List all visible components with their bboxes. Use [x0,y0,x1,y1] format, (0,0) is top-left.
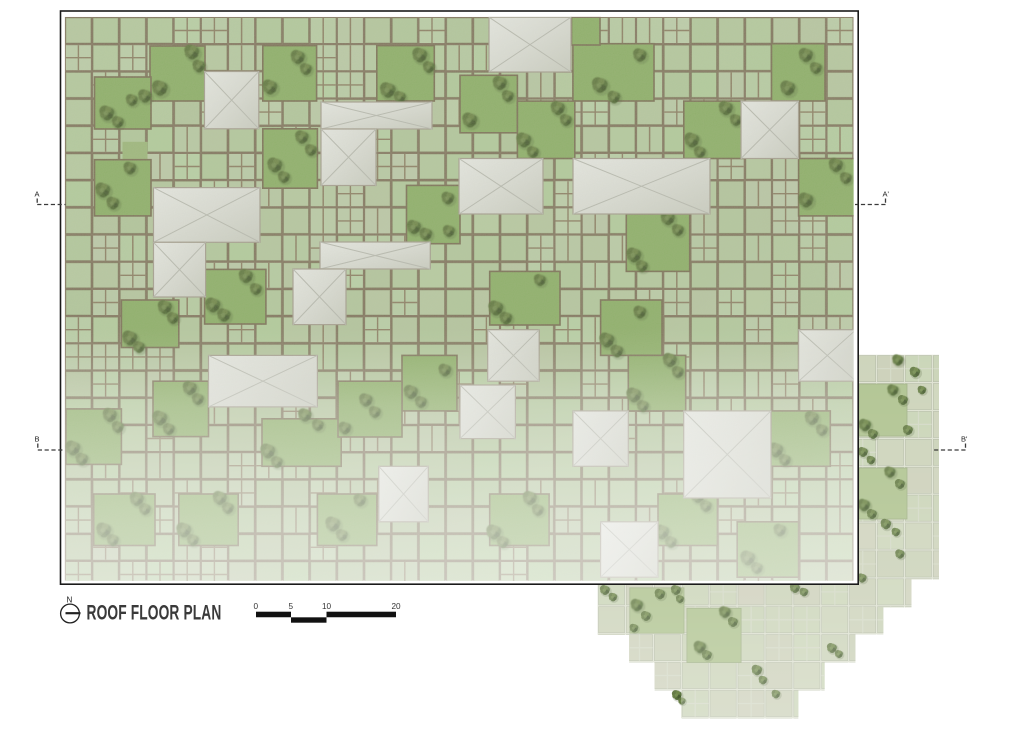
svg-text:ROOF FLOOR PLAN: ROOF FLOOR PLAN [87,600,222,624]
svg-text:10: 10 [322,602,332,611]
svg-text:20: 20 [392,602,402,611]
svg-text:B: B [35,435,40,444]
svg-text:A': A' [883,190,890,199]
svg-text:N: N [67,596,73,605]
svg-text:0: 0 [254,602,259,611]
svg-text:5: 5 [289,602,294,611]
svg-text:B': B' [961,435,968,444]
svg-text:A: A [35,190,40,199]
